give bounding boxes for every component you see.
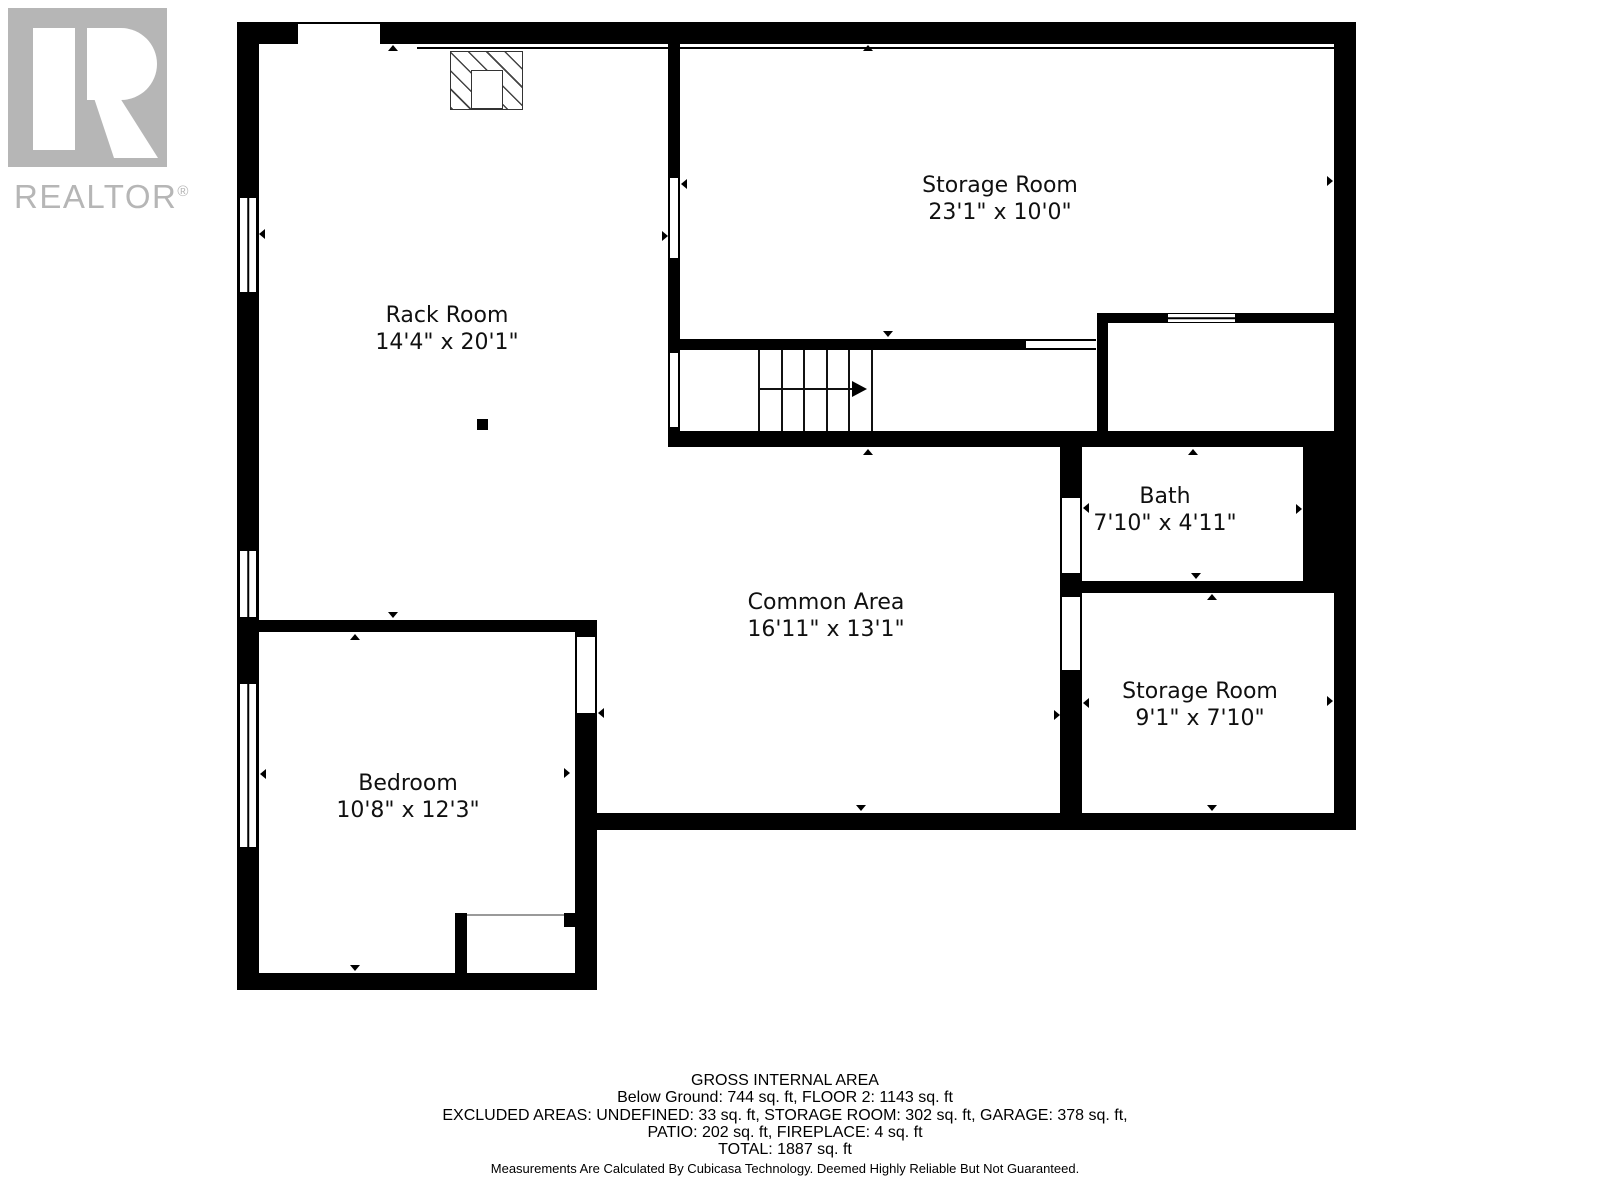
measure-arrow (564, 768, 570, 778)
measure-arrow (1327, 696, 1333, 706)
area-summary-total: TOTAL: 1887 sq. ft (442, 1141, 1127, 1158)
measure-arrow (1207, 594, 1217, 600)
area-summary-line: Below Ground: 744 sq. ft, FLOOR 2: 1143 … (442, 1089, 1127, 1106)
wall (455, 913, 467, 975)
fireplace-icon (450, 51, 523, 110)
stair-tread (803, 350, 805, 431)
wall (237, 22, 1356, 44)
wall (237, 620, 597, 632)
measure-arrow (863, 449, 873, 455)
door-opening (1026, 339, 1096, 350)
floor-plan-page: { "watermark": { "brand": "REALTOR", "re… (0, 0, 1600, 1200)
room-label-rack-room: Rack Room 14'4" x 20'1" (375, 302, 518, 356)
wall (668, 44, 680, 178)
measure-arrow (1191, 573, 1201, 579)
door-opening (575, 637, 597, 713)
room-dimensions: 14'4" x 20'1" (375, 329, 518, 356)
window-mullion (247, 551, 249, 617)
room-label-bath: Bath 7'10" x 4'11" (1093, 483, 1236, 537)
measure-arrow (388, 45, 398, 51)
window-mullion (247, 198, 249, 292)
room-label-bedroom: Bedroom 10'8" x 12'3" (336, 770, 479, 824)
wall (237, 973, 597, 990)
area-summary-line: EXCLUDED AREAS: UNDEFINED: 33 sq. ft, ST… (442, 1107, 1127, 1124)
window-mullion (247, 684, 249, 847)
door-opening (668, 353, 680, 427)
wall (575, 813, 1356, 830)
area-summary-line: PATIO: 202 sq. ft, FIREPLACE: 4 sq. ft (442, 1124, 1127, 1141)
wall (668, 431, 1356, 447)
window (1167, 313, 1236, 323)
measure-arrow (863, 45, 873, 51)
room-label-storage-room-right: Storage Room 9'1" x 7'10" (1122, 678, 1278, 732)
room-name: Bedroom (336, 770, 479, 797)
wall (1303, 447, 1356, 593)
wall-opening (298, 24, 380, 44)
room-label-common-area: Common Area 16'11" x 13'1" (747, 589, 904, 643)
measure-arrow (388, 612, 398, 618)
wall (1097, 313, 1108, 447)
measure-arrow (1207, 805, 1217, 811)
door-opening (1060, 597, 1082, 670)
measure-arrow (350, 965, 360, 971)
measure-arrow (1054, 710, 1060, 720)
wall (668, 339, 1028, 350)
measure-arrow (1083, 503, 1089, 513)
measure-arrow (662, 231, 668, 241)
disclaimer: Measurements Are Calculated By Cubicasa … (442, 1160, 1127, 1177)
measure-arrow (1296, 504, 1302, 514)
room-label-storage-room-top: Storage Room 23'1" x 10'0" (922, 172, 1078, 226)
fireplace-firebox (471, 70, 503, 109)
room-dimensions: 23'1" x 10'0" (922, 199, 1078, 226)
measure-arrow (883, 331, 893, 337)
stair-tread (871, 350, 873, 431)
measure-arrow (350, 634, 360, 640)
room-name: Storage Room (1122, 678, 1278, 705)
room-dimensions: 10'8" x 12'3" (336, 797, 479, 824)
window-mullion (1168, 317, 1235, 319)
room-name: Rack Room (375, 302, 518, 329)
measure-arrow (1188, 449, 1198, 455)
window (239, 683, 257, 848)
closet-door-line (467, 914, 564, 916)
stair-tread (781, 350, 783, 431)
wall (564, 913, 575, 927)
area-summary-heading: GROSS INTERNAL AREA (442, 1072, 1127, 1089)
wall (1060, 581, 1305, 593)
stairs-direction-arrow (852, 381, 867, 397)
measure-arrow (1327, 176, 1333, 186)
room-dimensions: 9'1" x 7'10" (1122, 705, 1278, 732)
area-summary: GROSS INTERNAL AREA Below Ground: 744 sq… (442, 1072, 1127, 1178)
stair-tread (758, 350, 760, 431)
room-name: Bath (1093, 483, 1236, 510)
measure-arrow (598, 708, 604, 718)
window (239, 550, 257, 618)
room-name: Common Area (747, 589, 904, 616)
measure-arrow (260, 769, 266, 779)
door-opening (668, 178, 680, 258)
door-opening (1060, 498, 1082, 573)
measure-arrow (1083, 698, 1089, 708)
measure-arrow (856, 805, 866, 811)
stair-tread (826, 350, 828, 431)
measure-arrow (681, 179, 687, 189)
wall-inner-line (417, 47, 1356, 49)
wall (1334, 22, 1356, 830)
opening-outer-line (298, 22, 380, 24)
room-dimensions: 7'10" x 4'11" (1093, 510, 1236, 537)
measure-arrow (259, 229, 265, 239)
stair-tread (848, 350, 850, 431)
floor-plan-drawing: Rack Room 14'4" x 20'1" Storage Room 23'… (0, 0, 1600, 1200)
window (239, 197, 257, 293)
room-dimensions: 16'11" x 13'1" (747, 616, 904, 643)
wall (477, 419, 488, 430)
room-name: Storage Room (922, 172, 1078, 199)
stair-arrow-shaft (758, 388, 856, 390)
